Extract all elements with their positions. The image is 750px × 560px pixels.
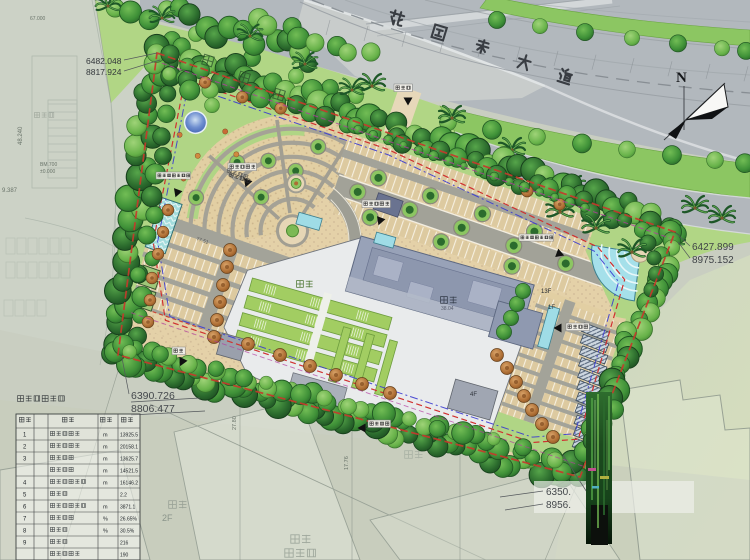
svg-text:1F: 1F xyxy=(548,305,555,311)
svg-text:13F: 13F xyxy=(541,289,552,295)
svg-text:m: m xyxy=(103,481,108,487)
svg-text:20158.1: 20158.1 xyxy=(120,445,138,451)
svg-text:2F: 2F xyxy=(162,513,173,523)
svg-text:3871.1: 3871.1 xyxy=(120,505,136,511)
svg-text:±0.000: ±0.000 xyxy=(40,169,55,175)
svg-text:27.80: 27.80 xyxy=(232,416,238,430)
svg-text:13925.5: 13925.5 xyxy=(120,433,138,439)
svg-text:4F: 4F xyxy=(470,392,477,398)
svg-text:190: 190 xyxy=(120,553,129,559)
svg-text:13625.7: 13625.7 xyxy=(120,457,138,463)
svg-text:%: % xyxy=(103,517,108,523)
svg-text:8975.152: 8975.152 xyxy=(692,255,734,266)
svg-text:67.000: 67.000 xyxy=(30,16,46,22)
svg-text:N: N xyxy=(676,70,687,86)
svg-text:%: % xyxy=(103,529,108,535)
svg-text:BM.700: BM.700 xyxy=(40,162,57,168)
svg-text:16146.2: 16146.2 xyxy=(120,481,138,487)
svg-text:30.5%: 30.5% xyxy=(120,529,135,535)
svg-text:m: m xyxy=(103,445,108,451)
svg-text:2.2: 2.2 xyxy=(120,493,127,499)
svg-text:216: 216 xyxy=(120,541,129,547)
svg-text:14521.5: 14521.5 xyxy=(120,469,138,475)
svg-text:9.387: 9.387 xyxy=(2,188,18,194)
svg-text:17.76: 17.76 xyxy=(344,456,350,470)
svg-text:8817.924: 8817.924 xyxy=(86,67,122,77)
svg-text:6350.: 6350. xyxy=(546,487,571,498)
svg-text:m: m xyxy=(103,433,108,439)
svg-text:38.04: 38.04 xyxy=(441,306,454,312)
svg-text:m: m xyxy=(103,457,108,463)
svg-text:m: m xyxy=(103,505,108,511)
svg-text:26.65%: 26.65% xyxy=(120,517,138,523)
svg-text:8956.: 8956. xyxy=(546,500,571,511)
svg-text:6482.048: 6482.048 xyxy=(86,56,122,66)
svg-text:6427.899: 6427.899 xyxy=(692,242,734,253)
svg-text:6390.726: 6390.726 xyxy=(131,390,175,402)
svg-text:m: m xyxy=(103,469,108,475)
svg-text:48.240: 48.240 xyxy=(18,126,24,145)
